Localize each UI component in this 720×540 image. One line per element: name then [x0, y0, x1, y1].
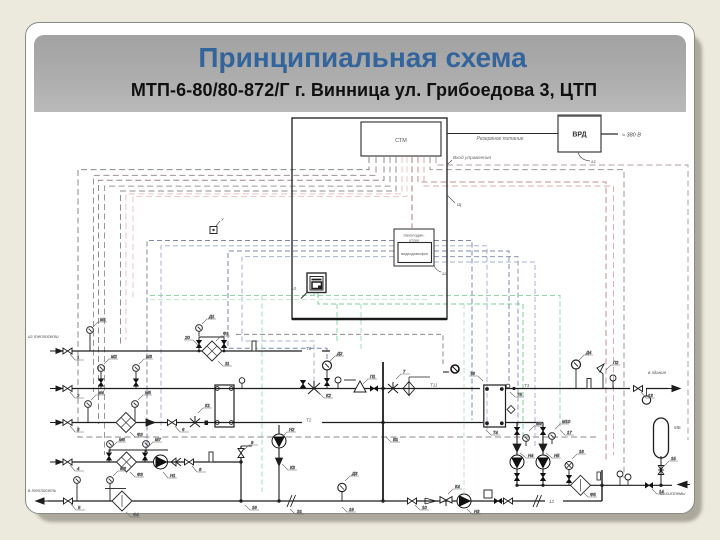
svg-text:14: 14 [659, 489, 664, 494]
svg-text:5: 5 [78, 505, 81, 510]
svg-text:З1: З1 [297, 509, 302, 514]
svg-text:Д2: Д2 [336, 351, 343, 356]
svg-text:Т5: Т5 [517, 392, 523, 397]
svg-text:в теплосеть: в теплосеть [28, 488, 57, 493]
svg-text:3: 3 [77, 427, 80, 432]
svg-text:К3: К3 [290, 465, 295, 470]
svg-text:15: 15 [671, 456, 676, 461]
svg-text:М4: М4 [98, 390, 104, 395]
svg-text:в здание: в здание [648, 370, 667, 375]
svg-text:16: 16 [579, 449, 584, 454]
svg-text:а3: а3 [291, 286, 297, 291]
svg-text:П2: П2 [613, 360, 619, 365]
svg-text:Т3: Т3 [524, 383, 530, 388]
svg-text:17: 17 [567, 430, 572, 435]
svg-text:Ф4: Ф4 [133, 512, 139, 517]
svg-text:М6: М6 [119, 437, 125, 442]
svg-text:Д3: Д3 [351, 471, 358, 476]
svg-text:из системы: из системы [660, 491, 686, 496]
svg-text:М5: М5 [145, 390, 151, 395]
svg-text:1: 1 [77, 355, 79, 360]
svg-text:М1: М1 [100, 317, 106, 322]
svg-text:4: 4 [77, 466, 80, 471]
svg-text:М10: М10 [562, 419, 571, 424]
svg-text:9: 9 [251, 440, 254, 445]
svg-text:СТМ: СТМ [395, 138, 407, 144]
svg-text:Резервное питание: Резервное питание [477, 136, 524, 142]
svg-text:≈ 380 В: ≈ 380 В [622, 133, 641, 139]
svg-text:20: 20 [184, 335, 190, 340]
svg-text:П1: П1 [370, 374, 375, 379]
svg-text:Н2: Н2 [289, 427, 295, 432]
svg-text:М2: М2 [111, 354, 117, 359]
svg-text:отсек: отсек [409, 238, 419, 243]
svg-text:М3: М3 [146, 354, 152, 359]
svg-text:Н1: Н1 [170, 473, 175, 478]
svg-text:Н4: Н4 [528, 453, 534, 458]
svg-text:2: 2 [76, 393, 80, 398]
svg-text:М9: М9 [536, 421, 542, 426]
svg-text:Т2: Т2 [306, 418, 312, 423]
svg-text:6: 6 [182, 427, 185, 432]
svg-text:Н3: Н3 [474, 509, 480, 514]
svg-text:18: 18 [252, 505, 257, 510]
svg-text:Щ: Щ [457, 202, 462, 208]
svg-text:Н5: Н5 [554, 453, 560, 458]
svg-text:В1: В1 [393, 437, 398, 442]
svg-text:7: 7 [403, 369, 406, 374]
svg-text:Вход управления: Вход управления [453, 155, 491, 161]
svg-text:10: 10 [422, 505, 427, 510]
svg-text:19: 19 [349, 507, 354, 512]
svg-text:Ф1: Ф1 [223, 331, 229, 336]
svg-text:а1: а1 [591, 159, 597, 164]
svg-text:12: 12 [549, 499, 555, 504]
svg-text:Т6: Т6 [470, 371, 476, 376]
svg-text:Д4: Д4 [585, 350, 592, 355]
svg-text:11: 11 [225, 361, 229, 366]
svg-text:а2: а2 [442, 271, 448, 276]
svg-text:К2: К2 [326, 393, 331, 398]
svg-text:М8: М8 [120, 466, 126, 471]
svg-text:К1: К1 [205, 403, 210, 408]
svg-text:13: 13 [648, 393, 653, 398]
svg-text:М7: М7 [155, 437, 161, 442]
svg-text:Т4: Т4 [493, 430, 499, 435]
svg-text:Ф3: Ф3 [137, 472, 143, 477]
svg-text:из теплосети: из теплосети [28, 334, 59, 339]
svg-text:ВРД: ВРД [572, 132, 586, 139]
svg-text:Т1: Т1 [306, 346, 312, 351]
svg-text:видеодомофон: видеодомофон [401, 252, 428, 256]
svg-text:К4: К4 [455, 484, 460, 489]
svg-text:Ф5: Ф5 [590, 492, 596, 497]
svg-text:Т11: Т11 [430, 383, 438, 388]
svg-text:У: У [221, 217, 225, 222]
svg-text:Ф2: Ф2 [137, 432, 143, 437]
svg-text:Д1: Д1 [208, 314, 214, 319]
svg-text:МБ: МБ [674, 425, 681, 430]
svg-text:8: 8 [199, 467, 202, 472]
